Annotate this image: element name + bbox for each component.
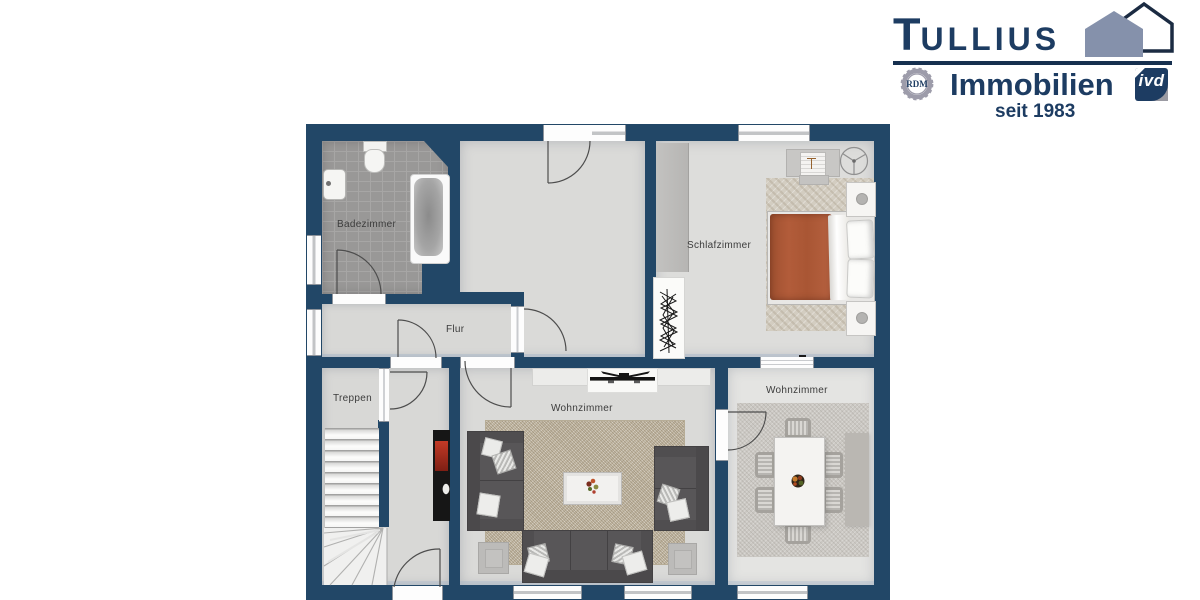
svg-text:RDM: RDM	[906, 79, 928, 89]
